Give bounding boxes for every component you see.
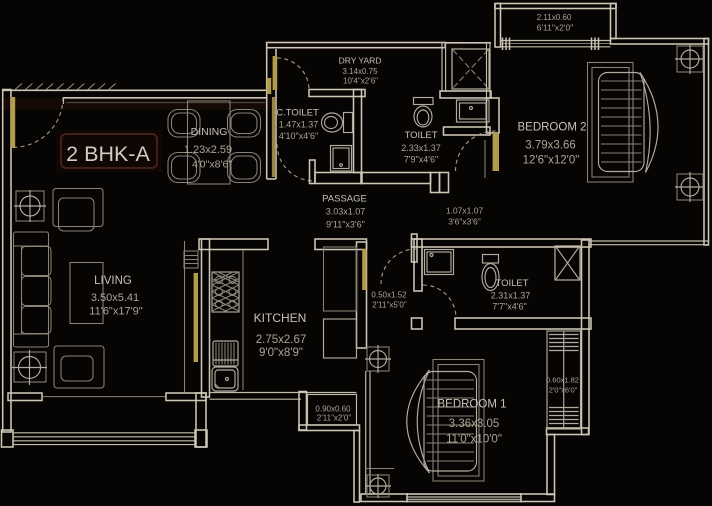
svg-text:3.03x1.07: 3.03x1.07 — [326, 207, 366, 217]
svg-text:3.79x3.66: 3.79x3.66 — [525, 140, 576, 152]
svg-text:7'9"x4'6": 7'9"x4'6" — [404, 155, 438, 165]
svg-text:2.31x1.37: 2.31x1.37 — [491, 291, 531, 301]
svg-text:9'0"x8'9": 9'0"x8'9" — [259, 347, 303, 359]
svg-text:TOILET: TOILET — [404, 130, 437, 141]
svg-text:TOILET: TOILET — [495, 278, 528, 289]
svg-text:PASSAGE: PASSAGE — [322, 194, 367, 205]
svg-text:11'6"x17'9": 11'6"x17'9" — [89, 306, 142, 318]
svg-text:2'11"x2'0": 2'11"x2'0" — [317, 414, 352, 423]
svg-text:4'10"x4'6": 4'10"x4'6" — [279, 131, 318, 141]
svg-text:2 BHK-A: 2 BHK-A — [66, 142, 150, 166]
svg-text:12'6"x12'0": 12'6"x12'0" — [523, 155, 580, 167]
svg-text:DRY YARD: DRY YARD — [339, 56, 382, 66]
svg-text:KITCHEN: KITCHEN — [254, 311, 307, 325]
svg-text:11'0"x10'0": 11'0"x10'0" — [446, 434, 502, 446]
svg-text:10'4"x2'6": 10'4"x2'6" — [343, 77, 378, 86]
svg-text:BEDROOM 1: BEDROOM 1 — [437, 399, 506, 411]
svg-text:9'11"x3'6": 9'11"x3'6" — [326, 220, 365, 230]
svg-text:DINING: DINING — [191, 126, 228, 138]
svg-text:4'0"x8'6": 4'0"x8'6" — [192, 159, 232, 171]
svg-text:2.75x2.67: 2.75x2.67 — [256, 334, 307, 346]
svg-text:0.50x1.52: 0.50x1.52 — [371, 291, 407, 300]
svg-text:BEDROOM 2: BEDROOM 2 — [517, 122, 586, 134]
svg-text:0.90x0.60: 0.90x0.60 — [315, 405, 351, 414]
svg-text:2'0"x6'0": 2'0"x6'0" — [549, 386, 578, 395]
svg-text:6'11"x2'0": 6'11"x2'0" — [537, 23, 574, 33]
svg-text:2.33x1.37: 2.33x1.37 — [401, 143, 441, 153]
svg-text:3.36x3.05: 3.36x3.05 — [449, 418, 500, 430]
svg-text:2.11x0.60: 2.11x0.60 — [537, 13, 572, 22]
svg-text:3'6"x3'6": 3'6"x3'6" — [448, 217, 480, 227]
svg-text:3.50x5.41: 3.50x5.41 — [91, 292, 139, 304]
svg-text:3.14x0.75: 3.14x0.75 — [342, 67, 378, 76]
svg-text:2'11"x5'0": 2'11"x5'0" — [372, 301, 407, 310]
svg-text:7'7"x4'6": 7'7"x4'6" — [492, 302, 526, 312]
svg-text:0.60x1.82: 0.60x1.82 — [546, 376, 579, 385]
svg-text:LIVING: LIVING — [94, 275, 132, 287]
svg-text:C.TOILET: C.TOILET — [276, 108, 319, 119]
svg-text:1.23x2.59: 1.23x2.59 — [184, 144, 232, 156]
svg-text:1.47x1.37: 1.47x1.37 — [279, 120, 319, 130]
svg-text:1.07x1.07: 1.07x1.07 — [446, 206, 484, 216]
